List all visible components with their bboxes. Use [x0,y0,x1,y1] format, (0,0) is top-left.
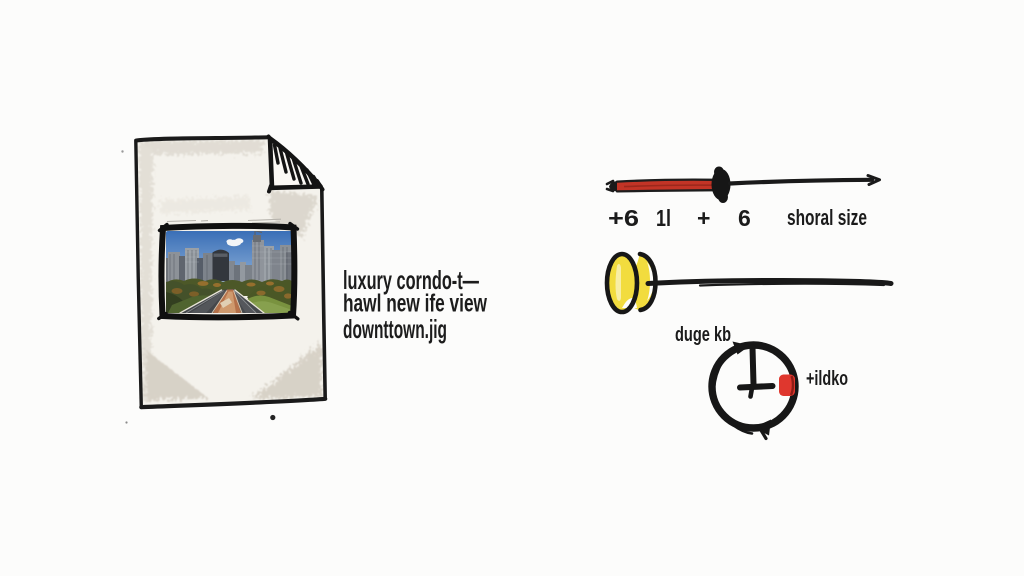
svg-text:+: + [697,205,710,231]
svg-text:duge kb: duge kb [675,324,731,346]
svg-text:shoral size: shoral size [787,205,867,230]
svg-text:1l: 1l [656,205,671,231]
svg-text:+ildko: +ildko [806,368,848,390]
svg-text:6: 6 [738,205,751,231]
svg-text:downttown.jig: downttown.jig [343,314,447,344]
svg-text:+6: +6 [608,205,639,231]
